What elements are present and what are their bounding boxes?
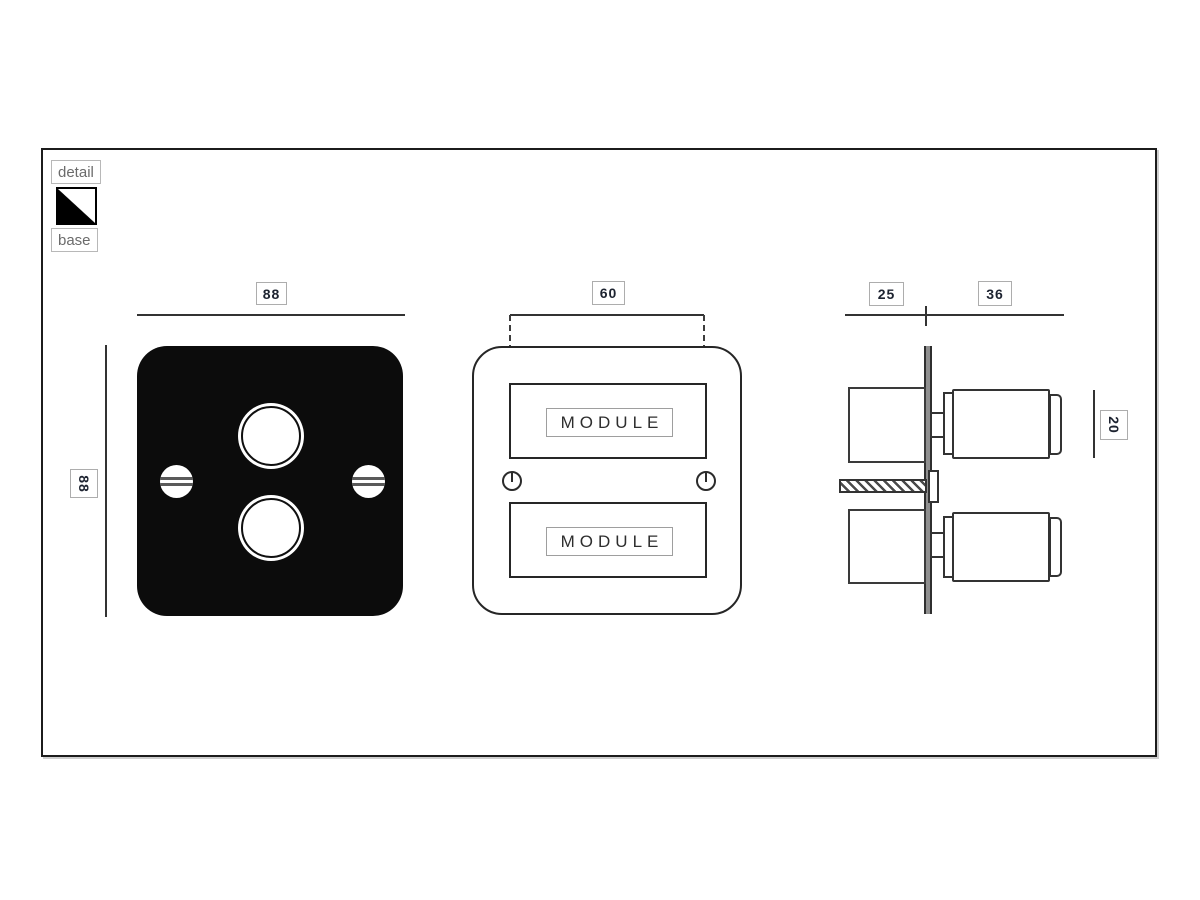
- legend-base-label: base: [51, 228, 98, 252]
- screw-left: [160, 465, 193, 498]
- dim-depth-line: [845, 314, 1064, 316]
- knob-bottom-ring: [241, 498, 301, 558]
- dim-spacing-60-line: [510, 314, 704, 316]
- side-knob-top-body: [952, 389, 1050, 459]
- side-knob-top-stem: [930, 412, 945, 438]
- legend-detail-label: detail: [51, 160, 101, 184]
- side-module-box-top: [848, 387, 926, 463]
- dim-width-88-label: 88: [256, 282, 287, 305]
- dim-spacing-60-value: 60: [600, 285, 618, 301]
- screw-right: [352, 465, 385, 498]
- dim-depth-divider-tick: [925, 306, 927, 326]
- dim-width-88-line: [137, 314, 405, 316]
- mounting-hole-right-tick: [705, 473, 707, 482]
- dim-knob-20-label: 20: [1100, 410, 1128, 440]
- dim-width-88-value: 88: [263, 286, 281, 302]
- side-knob-bottom-cap: [1049, 517, 1062, 577]
- module-label-top-text: MODULE: [561, 413, 664, 433]
- module-label-bottom-text: MODULE: [561, 532, 664, 552]
- dim-knob-20-value: 20: [1106, 416, 1122, 434]
- screw-left-slot-bottom: [160, 483, 193, 486]
- knob-top-ring: [241, 406, 301, 466]
- dim-depth-25-label: 25: [869, 282, 904, 306]
- dim-knob-20-line: [1093, 390, 1095, 458]
- side-screw-shaft: [839, 479, 927, 493]
- knob-bottom: [238, 495, 304, 561]
- module-label-bottom: MODULE: [546, 527, 673, 556]
- module-label-top: MODULE: [546, 408, 673, 437]
- dim-depth-25-value: 25: [878, 286, 896, 302]
- side-knob-bottom-stem: [930, 532, 945, 558]
- mounting-hole-right: [696, 471, 716, 491]
- side-module-box-bottom: [848, 509, 926, 584]
- legend-detail-text: detail: [58, 164, 94, 181]
- dim-spacing-60-label: 60: [592, 281, 625, 305]
- legend-base-text: base: [58, 232, 91, 249]
- legend-material-swatch: [56, 187, 97, 225]
- mounting-hole-left-tick: [511, 473, 513, 482]
- dim-height-88-value: 88: [76, 475, 92, 493]
- dim-depth-36-value: 36: [986, 286, 1004, 302]
- side-knob-bottom-body: [952, 512, 1050, 582]
- screw-left-slot-top: [160, 477, 193, 480]
- screw-right-slot-top: [352, 477, 385, 480]
- side-knob-top-cap: [1049, 394, 1062, 455]
- dim-height-88-label: 88: [70, 469, 98, 498]
- dim-depth-36-label: 36: [978, 281, 1012, 306]
- dim-height-88-line: [105, 345, 107, 617]
- drawing-canvas: detail base 88 88 60 MODULE M: [0, 0, 1200, 900]
- screw-right-slot-bottom: [352, 483, 385, 486]
- mounting-hole-left: [502, 471, 522, 491]
- side-screw-bushing: [928, 470, 939, 503]
- knob-top: [238, 403, 304, 469]
